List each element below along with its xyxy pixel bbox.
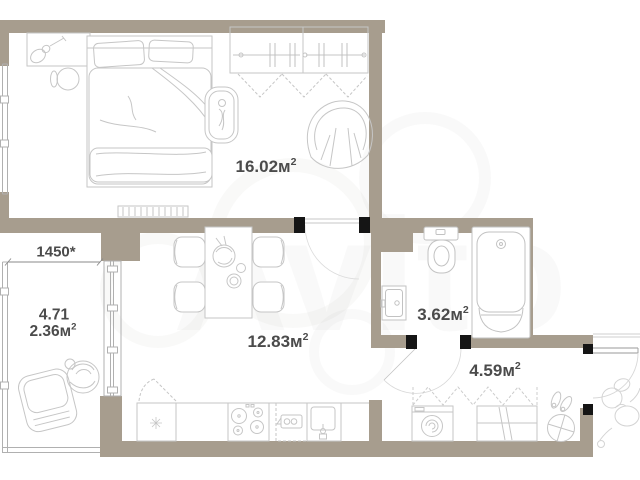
hallway-wardrobe: [477, 406, 537, 441]
wall-bottom: [100, 441, 593, 457]
balcony-furniture: [16, 359, 99, 434]
wall-kitchen-right: [369, 400, 382, 445]
coat-rack-swings: [413, 387, 537, 405]
bathroom-sink: [381, 286, 406, 320]
fridge-door-swing: [139, 379, 176, 401]
wardrobe-door-swings: [238, 74, 367, 97]
outdoor-object-sketch: [598, 377, 640, 448]
balcony-width-dimension-label: 1450*: [36, 245, 75, 260]
bed: [87, 36, 212, 187]
stove: [228, 403, 269, 441]
balcony-reduced-area-label: 2.36м2: [30, 323, 77, 340]
balcony-bottom-glazing: [2, 448, 100, 453]
bedside-bench: [118, 206, 188, 217]
bathroom-area-label: 3.62м2: [417, 305, 469, 323]
fridge: [137, 379, 176, 441]
bedroom-window: [1, 64, 9, 194]
wall-left-upper: [0, 20, 9, 66]
wall-hallway-top-left: [371, 335, 407, 348]
crib: [205, 87, 238, 143]
floor-plan: Avito: [0, 0, 640, 480]
dining-table: [205, 227, 252, 318]
bathtub: [472, 227, 530, 338]
bedroom-area-label: 16.02м2: [236, 157, 297, 175]
wall-below-balcony-window: [100, 396, 122, 445]
desk: [27, 33, 90, 66]
wardrobe: [230, 27, 368, 97]
toilet: [424, 227, 458, 273]
wall-balcony-pillar: [101, 233, 140, 261]
balcony-total-area-label: 4.71: [39, 307, 69, 323]
wall-bedroom-right: [369, 20, 382, 233]
wall-bathroom-duct: [371, 233, 413, 252]
floor-plan-drawing: Avito: [0, 0, 640, 480]
hallway-furniture: [412, 387, 575, 442]
exterior-line: [593, 334, 640, 337]
entrance-door: [593, 334, 640, 398]
washing-machine: [412, 406, 453, 441]
wall-mid-left: [0, 218, 304, 233]
hallway-area-label: 4.59м2: [469, 361, 521, 379]
kitchen-living-area-label: 12.83м2: [248, 332, 309, 350]
shoes: [549, 391, 574, 414]
lounge-chair: [16, 367, 79, 435]
desk-chair: [51, 68, 80, 90]
laundry-basket: [548, 415, 575, 442]
kitchen-sink: [307, 403, 341, 441]
dishwasher: [276, 403, 307, 441]
